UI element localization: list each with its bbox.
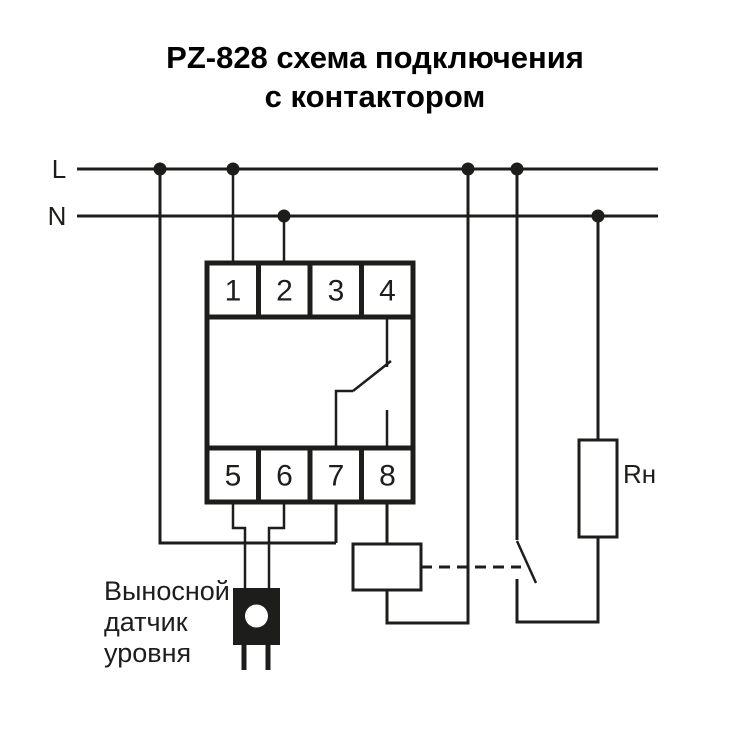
load-resistor	[579, 440, 617, 537]
sensor-label-line-2: датчик	[104, 607, 188, 637]
load-circuit: Rн	[579, 440, 656, 537]
wire-terminal6-to-sensor	[269, 502, 284, 588]
sensor-label-line-3: уровня	[104, 638, 191, 668]
power-bus: L N	[48, 154, 658, 231]
load-resistor-label: Rн	[623, 459, 656, 489]
sensor-circuit: Выносной датчик уровня	[104, 502, 336, 670]
terminal-5-label: 5	[225, 460, 242, 493]
terminal-7-label: 7	[328, 460, 345, 493]
relay-device: 1 2 3 4 5 6 7 8	[207, 263, 413, 502]
bus-label-n: N	[48, 201, 67, 231]
contactor-switch-blade	[517, 541, 536, 583]
terminal-4-label: 4	[379, 275, 396, 308]
bus-label-l: L	[52, 154, 66, 184]
terminal-6-label: 6	[276, 460, 293, 493]
contactor-coil	[353, 544, 421, 590]
terminal-8-label: 8	[379, 460, 396, 493]
wiring-diagram: L N	[0, 0, 750, 750]
level-sensor-eye	[245, 605, 268, 628]
terminal-2-label: 2	[276, 275, 293, 308]
level-sensor-probe	[266, 645, 271, 670]
sensor-label-line-1: Выносной	[104, 576, 230, 606]
wire-terminal5-to-sensor	[233, 502, 245, 588]
wire-switch-to-resistor	[517, 537, 598, 622]
level-sensor-probe	[242, 645, 247, 670]
contactor	[353, 502, 598, 622]
terminal-1-label: 1	[225, 275, 242, 308]
diagram-canvas: PZ-828 схема подключения с контактором L…	[0, 0, 750, 750]
terminal-3-label: 3	[328, 275, 345, 308]
